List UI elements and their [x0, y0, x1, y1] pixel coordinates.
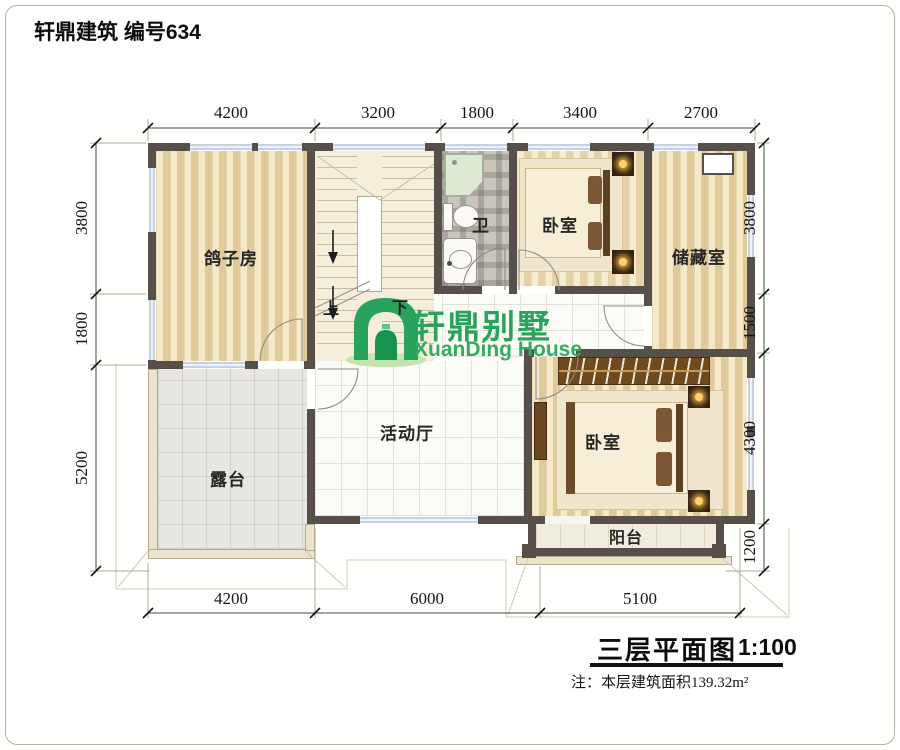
dim-top-5: 2700	[684, 103, 718, 123]
dim-top-1: 4200	[214, 103, 248, 123]
dim-right-2: 1500	[740, 306, 760, 340]
room-label-bath: 卫	[472, 212, 490, 237]
dim-top-2: 3200	[361, 103, 395, 123]
stair-up-label: 上	[323, 295, 339, 319]
area-note: 注：本层建筑面积139.32m²	[571, 671, 748, 692]
dim-right-1: 3800	[740, 201, 760, 235]
dim-left-1: 3800	[72, 201, 92, 235]
room-label-hall: 活动厅	[380, 420, 434, 445]
dim-right-4: 1200	[740, 530, 760, 564]
dim-right-3: 4300	[740, 421, 760, 455]
dim-bottom-3: 5100	[623, 589, 657, 609]
logo-name-en: XuanDing House	[414, 338, 582, 362]
room-label-balcony: 阳台	[609, 524, 643, 548]
dim-bottom-2: 6000	[410, 589, 444, 609]
room-label-storage: 储藏室	[672, 244, 726, 269]
titleblock-rule	[590, 663, 783, 667]
plan-scale: 1:100	[738, 634, 797, 661]
dim-top-4: 3400	[563, 103, 597, 123]
dim-bottom-1: 4200	[214, 589, 248, 609]
stair-down-label: 下	[392, 294, 408, 318]
room-label-terrace: 露台	[210, 466, 246, 491]
dim-top-3: 1800	[460, 103, 494, 123]
room-label-bedroom2: 卧室	[585, 429, 621, 454]
dim-left-2: 1800	[72, 312, 92, 346]
room-label-bedroom1: 卧室	[542, 212, 578, 237]
room-label-pigeon: 鸽子房	[204, 245, 258, 270]
floor-plan-sheet: 轩鼎建筑 编号634	[0, 0, 900, 750]
dim-left-3: 5200	[72, 451, 92, 485]
plan-name: 三层平面图	[597, 630, 737, 667]
